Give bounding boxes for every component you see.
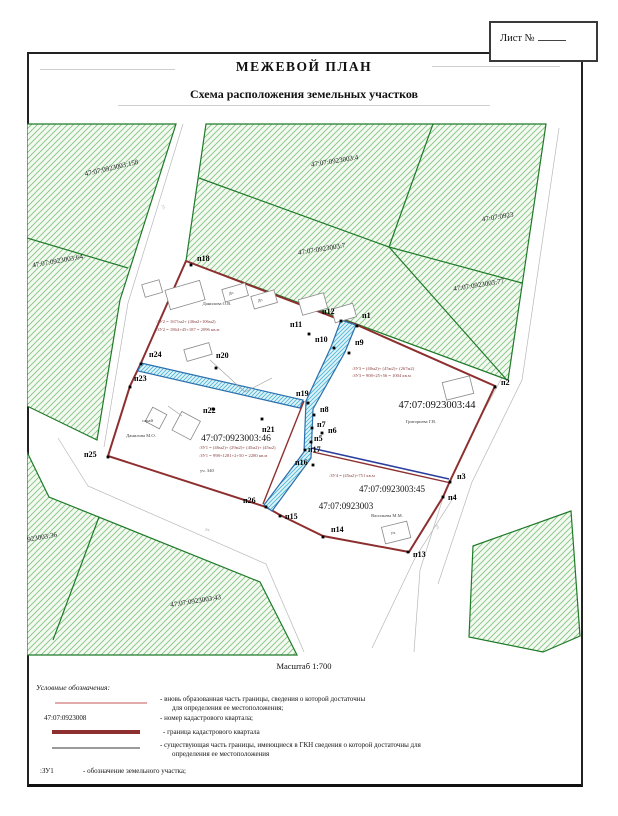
legend-item-zu: - обозначение земельного участка; xyxy=(83,767,186,776)
svg-text:п2: п2 xyxy=(501,378,510,387)
svg-text:п11: п11 xyxy=(290,320,302,329)
svg-text:п22: п22 xyxy=(203,406,216,415)
svg-text:п25: п25 xyxy=(84,450,97,459)
legend-item-new-boundary: - вновь образованная часть границы, свед… xyxy=(160,695,365,704)
uch-340-label: уч. 340 xyxy=(200,468,214,473)
legend-item-existing-boundary: - существующая часть границы, имеющиеся … xyxy=(160,741,421,750)
parcel-label-46: 47:07:0923003:46 xyxy=(201,434,271,444)
survey-point-p22: п22 xyxy=(203,406,216,415)
page-subtitle: Схема расположения земельных участков xyxy=(27,87,581,102)
parcel-label-0923003: 47:07:0923003 xyxy=(319,501,374,511)
survey-point-p25: п25 xyxy=(84,450,109,459)
point-marker xyxy=(215,367,218,370)
point-marker xyxy=(279,515,282,518)
point-marker xyxy=(304,449,307,452)
mezhevoy-plan-page: Лист № МЕЖЕВОЙ ПЛАН Схема расположения з… xyxy=(0,0,618,816)
point-marker xyxy=(356,325,359,328)
point-marker xyxy=(107,456,110,459)
point-marker xyxy=(442,496,445,499)
point-marker xyxy=(449,481,452,484)
legend-symbol-quarter-number: 47:07:0923008 xyxy=(44,714,86,722)
point-marker xyxy=(407,551,410,554)
point-marker xyxy=(307,402,310,405)
parcel-label-44: 47:07:0923003:44 xyxy=(398,400,476,411)
zu1-annotation: :ЗУ1 = 998+1281+2+50 = 2280 кв.м xyxy=(199,453,267,458)
divider xyxy=(40,69,175,70)
svg-text:п1: п1 xyxy=(362,311,371,320)
point-marker xyxy=(494,386,497,389)
legend-symbol-existing-boundary xyxy=(52,747,140,749)
legend-item-quarter-boundary: - граница кадастрового квартала xyxy=(163,728,260,737)
svg-text:п4: п4 xyxy=(448,493,457,502)
parcel-label-45: 47:07:0923003:45 xyxy=(359,484,426,494)
saray-label: сарай xyxy=(142,418,153,423)
divider xyxy=(432,66,560,67)
legend-item-quarter-number: - номер кадастрового квартала; xyxy=(160,714,253,723)
divider xyxy=(118,105,490,106)
svg-text:п17: п17 xyxy=(308,445,321,454)
parcel-bottom-right xyxy=(469,511,580,652)
zu2-annotation: :ЗУ2 = 1671м2+ (46м2+106м2) xyxy=(156,319,216,324)
point-marker xyxy=(265,506,268,509)
svg-text:п14: п14 xyxy=(331,525,344,534)
svg-text:п7: п7 xyxy=(317,420,326,429)
svg-text:п10: п10 xyxy=(315,335,328,344)
svg-text:п18: п18 xyxy=(197,254,210,263)
owner-danilova-mo: Данилова М.О. xyxy=(126,433,156,438)
point-marker xyxy=(333,347,336,350)
survey-point-p2: п2 xyxy=(494,378,510,388)
scale-label: Масштаб 1:700 xyxy=(27,661,581,671)
point-marker xyxy=(322,536,325,539)
svg-text:п16: п16 xyxy=(295,458,308,467)
point-marker xyxy=(190,264,193,267)
zu1-annotation: :ЗУ1 = (46м2)+ (29м2)+ (45м2)+ (45м2) xyxy=(199,445,276,450)
svg-text:п8: п8 xyxy=(320,405,329,414)
svg-text:п19: п19 xyxy=(296,389,309,398)
svg-text:п3: п3 xyxy=(457,472,466,481)
zu2-annotation: :ЗУ2 = 1864+45+187 = 2096 кв.м xyxy=(156,327,220,332)
legend-item-new-boundary-cont: для определения ее местоположения; xyxy=(172,704,283,713)
point-marker xyxy=(261,418,264,421)
legend-item-existing-boundary-cont: определения ее местоположения xyxy=(172,750,269,759)
svg-text:п9: п9 xyxy=(355,338,364,347)
point-marker xyxy=(308,333,311,336)
cadastral-scheme-map: 47:07:0923003:158 47:07:0923003:4 47:07:… xyxy=(27,110,581,658)
point-marker xyxy=(340,320,343,323)
owner-grigoreva: Григорьева Г.В. xyxy=(406,419,436,424)
point-marker xyxy=(312,464,315,467)
legend-heading: Условные обозначения: xyxy=(36,683,110,692)
point-marker xyxy=(311,427,314,430)
svg-text:п6: п6 xyxy=(328,426,337,435)
svg-text:п15: п15 xyxy=(285,512,298,521)
svg-text:п20: п20 xyxy=(216,351,229,360)
legend-symbol-new-boundary xyxy=(55,702,147,704)
point-marker xyxy=(348,352,351,355)
sheet-number-blank xyxy=(538,30,566,41)
zu4-annotation: :ЗУ4 = (45м2)+751 кв.м xyxy=(329,473,375,478)
svg-text:п5: п5 xyxy=(314,434,323,443)
owner-vasileva: Васильева М.М. xyxy=(371,513,403,518)
point-marker xyxy=(129,386,132,389)
uch-label: уч. xyxy=(391,530,396,535)
sheet-number-box: Лист № xyxy=(489,21,598,62)
street-label: ул. xyxy=(205,526,211,532)
legend-symbol-quarter-boundary xyxy=(52,730,140,734)
svg-text:п21: п21 xyxy=(262,425,275,434)
point-marker xyxy=(313,414,316,417)
legend-symbol-zu: :ЗУ1 xyxy=(40,767,54,775)
street-label: ул. xyxy=(435,524,441,530)
sheet-number-label: Лист № xyxy=(500,33,535,44)
owner-danilova-ov: Данилова О.В. xyxy=(203,301,232,306)
point-marker xyxy=(140,363,143,366)
svg-text:п13: п13 xyxy=(413,550,426,559)
street-label: ул. xyxy=(161,204,167,210)
point-marker xyxy=(310,441,313,444)
svg-text:п26: п26 xyxy=(243,496,256,505)
svg-text:п23: п23 xyxy=(134,374,147,383)
zu3-annotation: :ЗУ3 = (40м2)+ (45м2)+ (267м2) xyxy=(352,366,415,371)
zu3-annotation: :ЗУ3 = 908+25+56 = 1004 кв.м xyxy=(352,373,411,378)
svg-text:п12: п12 xyxy=(322,307,335,316)
svg-text:п24: п24 xyxy=(149,350,162,359)
